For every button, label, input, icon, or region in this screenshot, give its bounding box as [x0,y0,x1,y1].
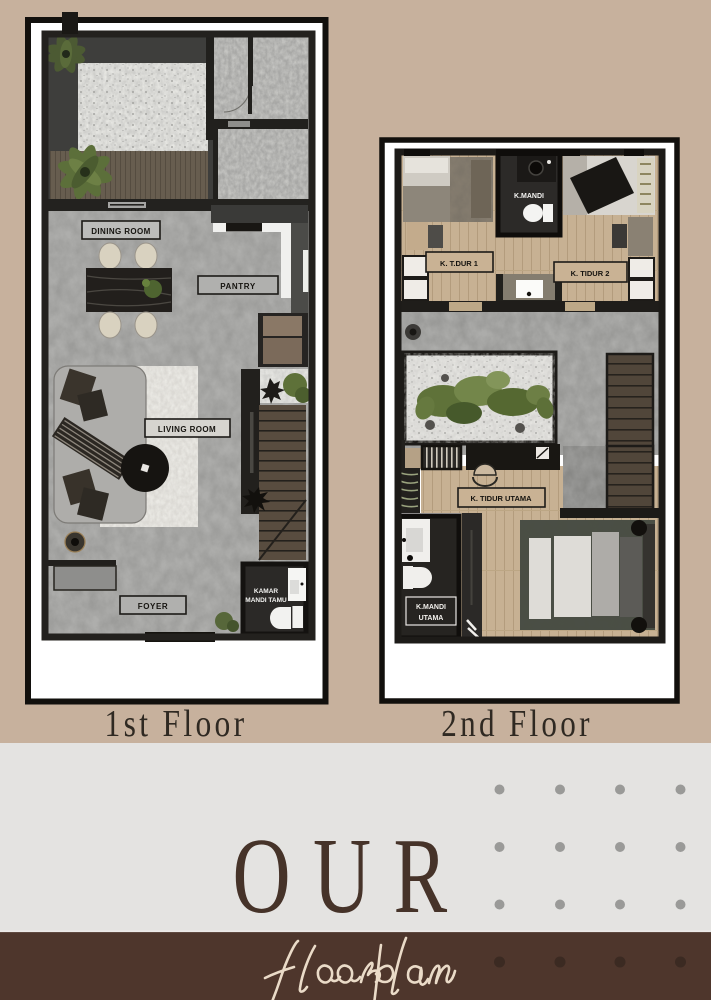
svg-text:FOYER: FOYER [138,602,169,611]
svg-text:2nd Floor: 2nd Floor [441,702,593,745]
svg-text:K.MANDI: K.MANDI [514,193,544,200]
svg-text:OUR: OUR [233,816,470,936]
svg-text:DINING ROOM: DINING ROOM [91,227,151,236]
svg-text:K.MANDI: K.MANDI [416,604,446,611]
svg-text:LIVING ROOM: LIVING ROOM [158,425,216,434]
svg-text:MANDI TAMU: MANDI TAMU [245,597,287,604]
svg-text:K. T.DUR 1: K. T.DUR 1 [440,259,478,268]
svg-text:K. TIDUR 2: K. TIDUR 2 [571,269,610,278]
svg-text:1st Floor: 1st Floor [105,702,248,744]
svg-text:UTAMA: UTAMA [419,615,444,622]
svg-text:PANTRY: PANTRY [220,282,256,291]
svg-text:KAMAR: KAMAR [254,588,278,595]
svg-text:K. TIDUR UTAMA: K. TIDUR UTAMA [470,494,532,503]
